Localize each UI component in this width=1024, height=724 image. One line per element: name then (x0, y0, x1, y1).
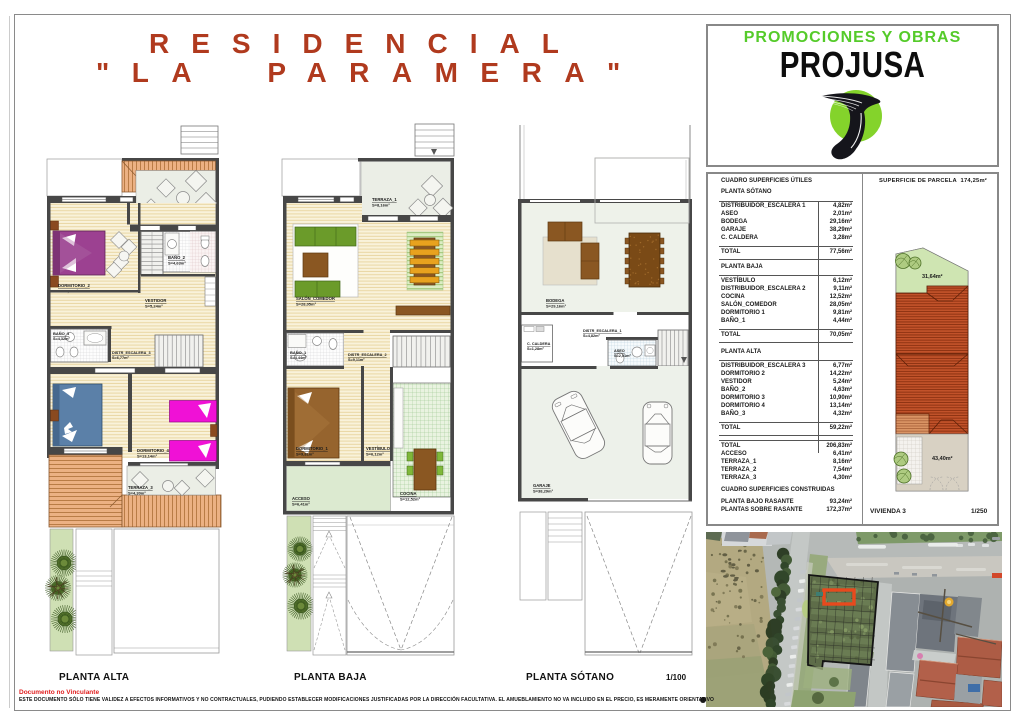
svg-text:DISTR_ESCALERA_2: DISTR_ESCALERA_2 (348, 353, 387, 357)
svg-text:DORMITORIO_2: DORMITORIO_2 (58, 283, 90, 288)
svg-text:S=9,81m²: S=9,81m² (296, 452, 314, 457)
svg-text:C. CALDERA: C. CALDERA (527, 342, 551, 346)
svg-text:S=9,11m²: S=9,11m² (348, 358, 365, 362)
svg-text:S=5,24m²: S=5,24m² (145, 304, 163, 309)
svg-text:31,64m²: 31,64m² (922, 273, 943, 280)
svg-text:43,40m²: 43,40m² (932, 455, 953, 462)
svg-text:TERRAZA_1: TERRAZA_1 (372, 197, 397, 202)
svg-text:S=4,44m²: S=4,44m² (290, 356, 308, 360)
svg-text:S=6,12m²: S=6,12m² (366, 452, 384, 457)
svg-text:S=8,16m²: S=8,16m² (372, 203, 390, 208)
svg-text:S=4,63m²: S=4,63m² (168, 261, 186, 266)
svg-text:S=4,82m²: S=4,82m² (583, 334, 601, 338)
svg-text:S=28,05m²: S=28,05m² (296, 302, 317, 307)
svg-text:VESTIDOR: VESTIDOR (145, 298, 166, 303)
svg-text:S=4,32m²: S=4,32m² (53, 337, 71, 341)
svg-text:ACCESO: ACCESO (292, 496, 311, 501)
svg-text:DISTR_ESCALERA_1: DISTR_ESCALERA_1 (583, 329, 622, 333)
svg-text:S=6,77m²: S=6,77m² (112, 356, 130, 360)
svg-text:BAÑO_1: BAÑO_1 (290, 350, 307, 355)
svg-text:S=29,16m²: S=29,16m² (546, 304, 567, 309)
svg-text:S=6,41m²: S=6,41m² (292, 502, 310, 507)
svg-text:DORMITORIO_4: DORMITORIO_4 (137, 448, 169, 453)
svg-text:S=1,28m²: S=1,28m² (527, 347, 545, 351)
svg-text:S=2,01m²: S=2,01m² (614, 354, 632, 358)
svg-text:S=38,29m²: S=38,29m² (533, 489, 554, 494)
svg-text:TERRAZA_3: TERRAZA_3 (128, 485, 153, 490)
svg-text:VESTÍBULO: VESTÍBULO (366, 446, 391, 451)
svg-text:BODEGA: BODEGA (546, 298, 564, 303)
svg-text:BAÑO_2: BAÑO_2 (168, 255, 186, 260)
svg-text:S=4,30m²: S=4,30m² (128, 491, 146, 496)
svg-text:DORMITORIO_1: DORMITORIO_1 (296, 446, 328, 451)
svg-text:DISTR_ESCALERA_3: DISTR_ESCALERA_3 (112, 351, 151, 355)
svg-text:ASEO: ASEO (614, 349, 625, 353)
svg-text:COCINA: COCINA (400, 491, 417, 496)
svg-text:SALÓN_COMEDOR: SALÓN_COMEDOR (296, 296, 335, 301)
svg-text:BAÑO_3: BAÑO_3 (53, 331, 70, 336)
svg-text:S=13,14m²: S=13,14m² (137, 454, 158, 459)
svg-text:S=12,52m²: S=12,52m² (400, 497, 421, 502)
svg-text:GARAJE: GARAJE (533, 483, 551, 488)
